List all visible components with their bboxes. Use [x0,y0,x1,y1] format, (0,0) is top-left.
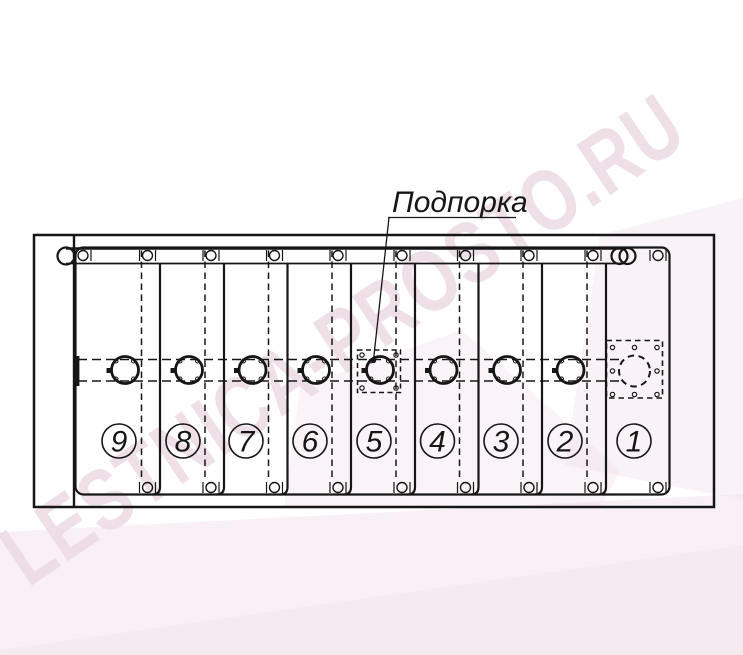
leader-end-dot [371,358,376,363]
step-number: 1 [626,426,643,459]
step-number: 4 [429,426,446,459]
step-number: 8 [175,426,192,459]
step-number: 5 [366,426,383,459]
step-number: 6 [302,426,319,459]
step-number: 7 [238,426,256,459]
step-number: 9 [111,426,128,459]
support-label: Подпорка [392,186,528,219]
step-number: 3 [493,426,510,459]
step-numbers: 9 8 7 6 5 4 3 2 1 [102,424,651,459]
axis-left-end [75,356,80,386]
technical-drawing: LESTNICA-PROSTO.RU [0,0,743,655]
step-number: 2 [556,426,574,459]
